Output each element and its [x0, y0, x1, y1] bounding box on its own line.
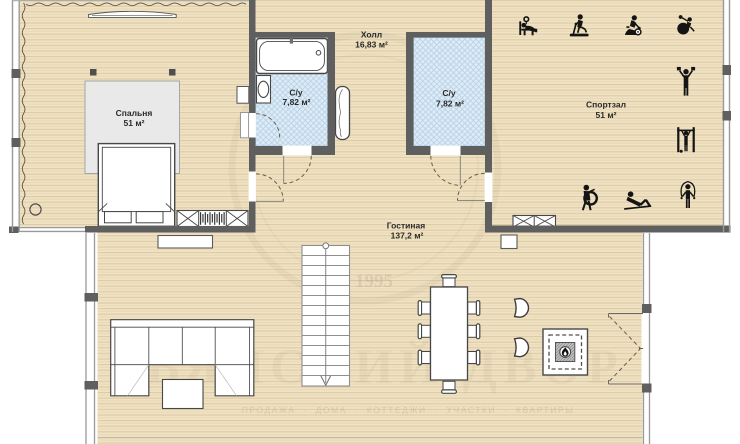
- svg-text:7,82 м²: 7,82 м²: [282, 97, 310, 107]
- svg-text:С/у: С/у: [289, 88, 303, 98]
- svg-text:С/у: С/у: [442, 88, 456, 98]
- svg-text:ПРОДАЖА · ДОМА · КОТТЕДЖИ: ПРОДАЖА · ДОМА · КОТТЕДЖИ · УЧАСТКИ · КВ…: [242, 405, 575, 415]
- svg-text:16,83 м²: 16,83 м²: [355, 40, 388, 50]
- svg-text:137,2 м²: 137,2 м²: [391, 231, 424, 241]
- svg-text:1995: 1995: [355, 271, 393, 292]
- svg-text:Спортзал: Спортзал: [586, 100, 626, 110]
- svg-text:51 м²: 51 м²: [596, 110, 617, 120]
- svg-text:Гостиная: Гостиная: [387, 221, 425, 231]
- svg-text:Спальня: Спальня: [116, 108, 153, 118]
- svg-text:Холл: Холл: [361, 30, 382, 40]
- svg-text:51 м²: 51 м²: [124, 118, 145, 128]
- svg-text:7,82 м²: 7,82 м²: [436, 99, 464, 109]
